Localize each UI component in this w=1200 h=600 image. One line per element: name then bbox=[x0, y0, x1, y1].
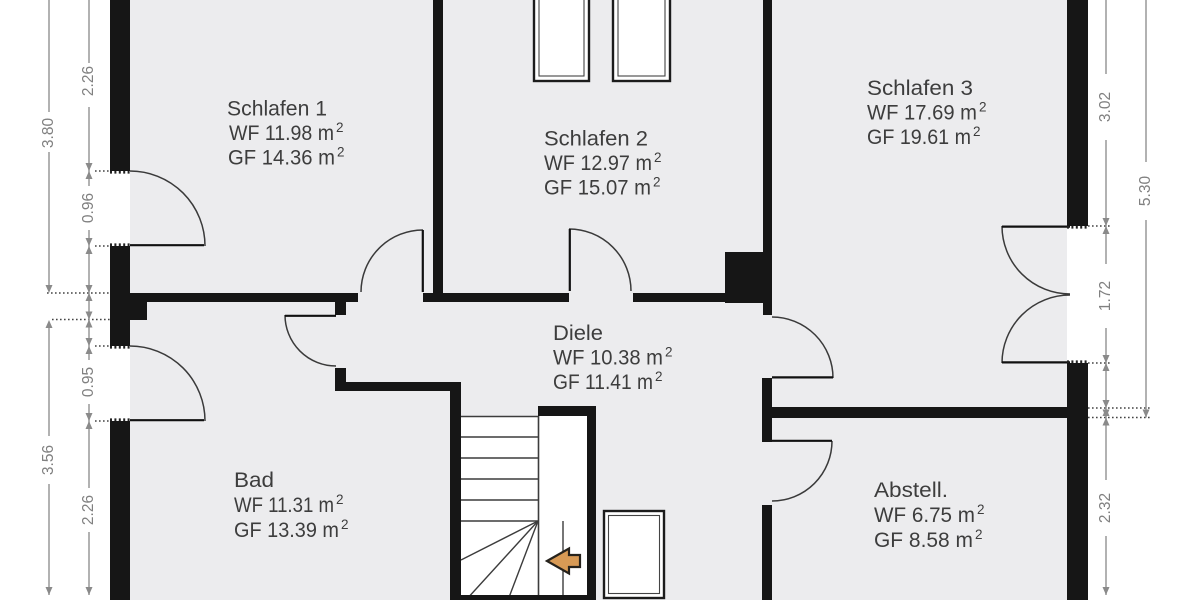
svg-text:0.96: 0.96 bbox=[80, 193, 97, 223]
svg-text:WF 11.31 m: WF 11.31 m bbox=[234, 492, 334, 517]
svg-text:GF 15.07 m: GF 15.07 m bbox=[544, 175, 651, 200]
svg-text:GF 8.58 m: GF 8.58 m bbox=[874, 527, 973, 552]
svg-text:2.26: 2.26 bbox=[80, 66, 97, 96]
svg-text:3.56: 3.56 bbox=[40, 445, 57, 475]
svg-text:GF 13.39 m: GF 13.39 m bbox=[234, 517, 339, 542]
svg-text:GF 14.36 m: GF 14.36 m bbox=[228, 145, 335, 170]
svg-text:2: 2 bbox=[665, 345, 673, 360]
svg-text:2: 2 bbox=[341, 517, 349, 532]
svg-text:2: 2 bbox=[977, 502, 985, 517]
svg-text:Schlafen 2: Schlafen 2 bbox=[544, 126, 648, 151]
svg-text:Schlafen 3: Schlafen 3 bbox=[867, 75, 973, 100]
svg-text:WF 11.98 m: WF 11.98 m bbox=[229, 120, 334, 145]
svg-text:2: 2 bbox=[336, 492, 344, 507]
svg-text:2: 2 bbox=[655, 369, 663, 384]
svg-text:2: 2 bbox=[973, 124, 981, 139]
svg-text:2.32: 2.32 bbox=[1097, 493, 1114, 523]
svg-text:3.02: 3.02 bbox=[1097, 92, 1114, 122]
svg-text:0.95: 0.95 bbox=[80, 367, 97, 397]
svg-text:2: 2 bbox=[654, 150, 662, 165]
svg-text:WF 6.75 m: WF 6.75 m bbox=[874, 502, 975, 527]
svg-text:2: 2 bbox=[653, 175, 661, 190]
svg-text:GF 19.61 m: GF 19.61 m bbox=[867, 124, 971, 149]
svg-text:WF 12.97 m: WF 12.97 m bbox=[544, 150, 652, 175]
svg-text:2: 2 bbox=[975, 527, 983, 542]
svg-text:2: 2 bbox=[337, 145, 345, 160]
svg-text:Bad: Bad bbox=[234, 467, 274, 492]
svg-text:1.72: 1.72 bbox=[1097, 281, 1114, 311]
svg-text:GF 11.41 m: GF 11.41 m bbox=[553, 369, 653, 394]
svg-text:5.30: 5.30 bbox=[1137, 176, 1154, 207]
svg-text:Schlafen 1: Schlafen 1 bbox=[227, 96, 327, 121]
svg-text:WF 10.38 m: WF 10.38 m bbox=[553, 345, 663, 370]
svg-text:WF 17.69 m: WF 17.69 m bbox=[867, 100, 977, 125]
svg-text:Abstell.: Abstell. bbox=[874, 477, 948, 502]
svg-text:Diele: Diele bbox=[553, 320, 603, 345]
svg-text:2.26: 2.26 bbox=[80, 495, 97, 525]
svg-text:2: 2 bbox=[979, 100, 987, 115]
svg-text:3.80: 3.80 bbox=[40, 118, 57, 149]
svg-text:2: 2 bbox=[336, 120, 344, 135]
